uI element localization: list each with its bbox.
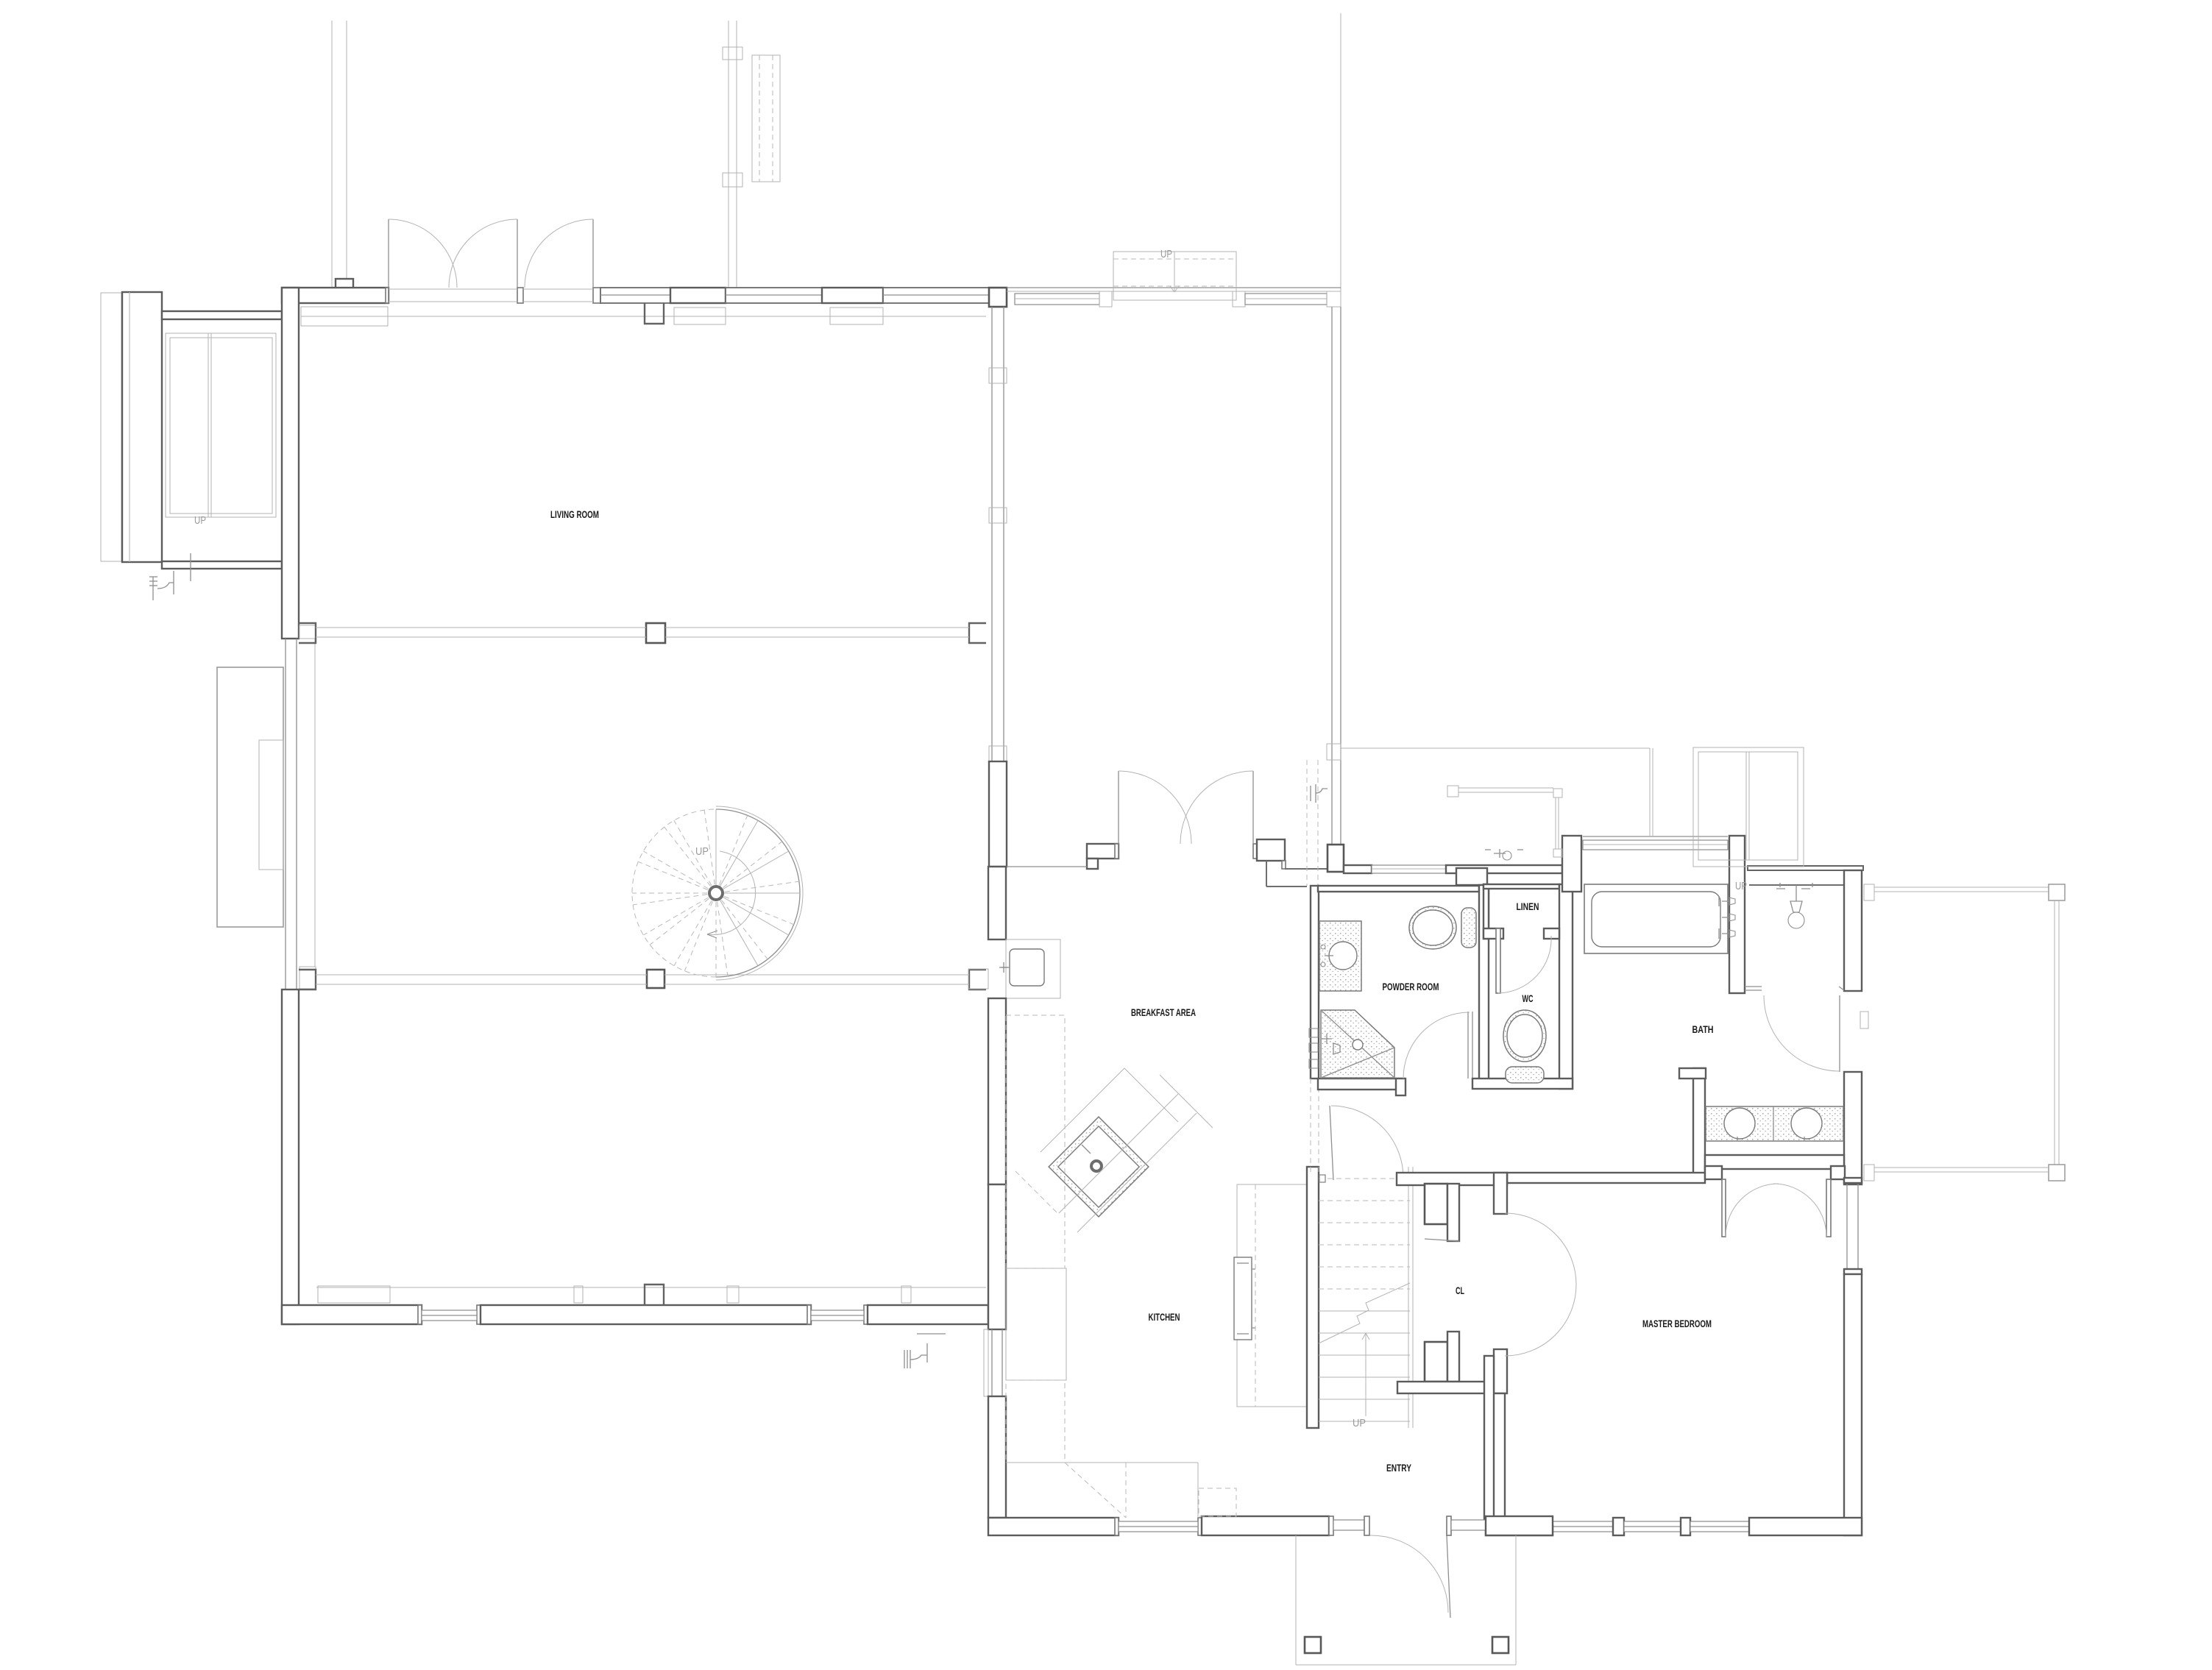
svg-text:BREAKFAST AREA: BREAKFAST AREA bbox=[1131, 1006, 1196, 1018]
svg-text:UP: UP bbox=[1160, 248, 1172, 260]
svg-text:UP: UP bbox=[695, 845, 709, 858]
svg-text:KITCHEN: KITCHEN bbox=[1149, 1311, 1180, 1323]
svg-text:LIVING ROOM: LIVING ROOM bbox=[550, 508, 599, 520]
svg-text:WC: WC bbox=[1522, 992, 1534, 1004]
svg-text:UP: UP bbox=[194, 514, 206, 527]
svg-text:CL: CL bbox=[1456, 1285, 1464, 1296]
svg-text:UP: UP bbox=[1353, 1417, 1366, 1429]
svg-text:BATH: BATH bbox=[1692, 1023, 1714, 1035]
svg-text:UP: UP bbox=[1735, 880, 1747, 892]
svg-text:MASTER BEDROOM: MASTER BEDROOM bbox=[1642, 1318, 1712, 1329]
svg-text:POWDER ROOM: POWDER ROOM bbox=[1383, 981, 1439, 992]
svg-text:LINEN: LINEN bbox=[1517, 900, 1539, 912]
svg-text:ENTRY: ENTRY bbox=[1386, 1462, 1411, 1474]
